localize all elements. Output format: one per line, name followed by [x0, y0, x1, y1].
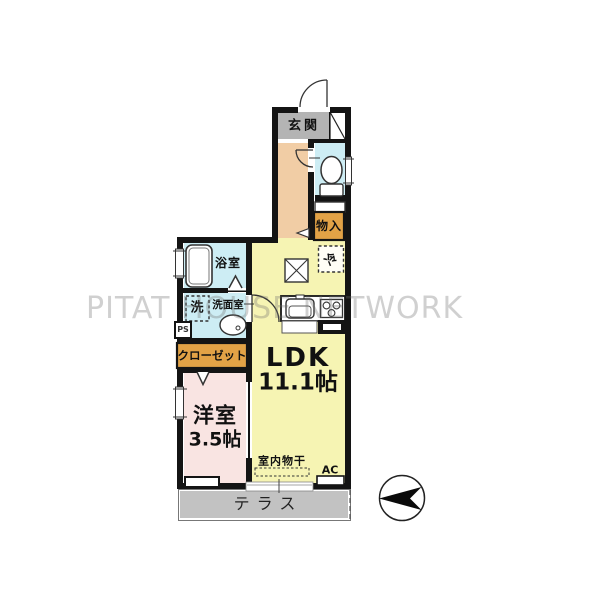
wall-under-genkan	[308, 139, 345, 143]
genkan-label: 玄関	[288, 120, 320, 133]
toilet-shelf	[315, 202, 345, 212]
closet-label: クローゼット	[178, 350, 247, 362]
watermark-text: PITAT HOUSE NETWORK	[86, 291, 463, 326]
entrance-door-arc	[300, 80, 327, 107]
western-room-label: 洋室	[193, 406, 237, 427]
wall-western-ldk-low	[246, 458, 252, 483]
hallway-floor	[278, 143, 308, 240]
western-low-window	[185, 477, 219, 487]
ldk-label: LDK	[266, 345, 330, 371]
indoor-drying-label: 室内物干	[258, 456, 306, 467]
ldk-size-label: 11.1帖	[258, 372, 338, 395]
genkan-step	[278, 139, 308, 143]
ac-box	[317, 476, 344, 485]
wall-lower-top	[177, 237, 276, 243]
wall-bath-ldk	[246, 237, 252, 295]
wall-hall-toilet-a	[308, 143, 314, 148]
toilet-bowl	[321, 157, 342, 184]
western-room-size-label: 3.5帖	[189, 431, 242, 450]
compass	[379, 476, 425, 521]
bath-window	[176, 249, 184, 278]
wall-western-ldk-door	[248, 382, 250, 458]
wall-column-left	[272, 107, 278, 243]
western-window	[176, 387, 184, 419]
toilet-tank	[320, 184, 343, 196]
wall-genkan-divider	[329, 112, 331, 139]
floorplan-canvas: 玄関 物入 冷 浴室 洗 洗面室 PS クローゼット LDK 11.1帖 洋室 …	[0, 0, 600, 600]
bathtub	[186, 245, 212, 287]
toilet-window	[346, 157, 352, 185]
bathroom-label: 浴室	[215, 257, 241, 269]
terrace-label: テラス	[234, 496, 303, 512]
monoire-label: 物入	[316, 220, 342, 232]
pipe-space-label: PS	[177, 326, 189, 334]
ac-label: AC	[322, 465, 339, 476]
